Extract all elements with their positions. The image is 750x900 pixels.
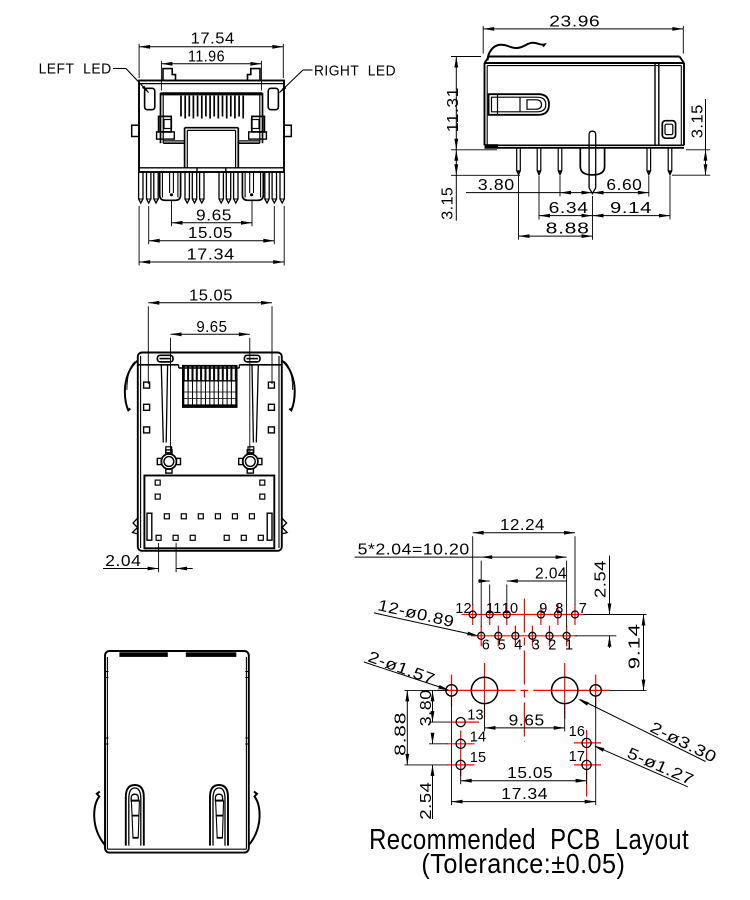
svg-text:11.31: 11.31 [445,87,462,132]
svg-text:9.14: 9.14 [610,200,652,217]
svg-text:5: 5 [498,638,506,654]
svg-text:3.15: 3.15 [440,187,457,220]
svg-text:3.80: 3.80 [478,177,515,194]
svg-text:6.34: 6.34 [549,200,589,217]
svg-text:8.88: 8.88 [546,221,590,238]
svg-text:2.04: 2.04 [105,553,141,570]
svg-text:10: 10 [502,601,519,617]
svg-text:(Tolerance:±0.05): (Tolerance:±0.05) [421,848,625,879]
svg-text:15.05: 15.05 [188,225,233,242]
svg-text:RIGHT LED: RIGHT LED [314,63,396,80]
svg-text:17.34: 17.34 [501,786,548,803]
svg-text:6: 6 [482,638,490,654]
svg-text:8.88: 8.88 [392,712,409,756]
svg-text:3.15: 3.15 [690,104,707,138]
svg-text:11.96: 11.96 [188,48,225,65]
svg-text:4: 4 [514,638,522,654]
svg-text:14: 14 [470,730,487,746]
svg-text:6.60: 6.60 [606,177,642,194]
svg-text:17.54: 17.54 [191,30,235,47]
svg-text:16: 16 [569,724,586,740]
svg-text:9.65: 9.65 [196,207,232,224]
svg-text:9.65: 9.65 [196,319,227,336]
svg-text:17.34: 17.34 [187,247,235,264]
svg-text:11: 11 [486,601,501,617]
svg-text:15.05: 15.05 [189,287,233,304]
svg-text:LEFT LED: LEFT LED [39,60,112,77]
svg-text:17: 17 [569,749,586,765]
svg-text:5*2.04=10.20: 5*2.04=10.20 [358,542,470,559]
svg-text:2.54: 2.54 [593,560,610,598]
svg-text:12.24: 12.24 [500,517,545,534]
svg-text:9.14: 9.14 [627,623,644,669]
svg-text:23.96: 23.96 [549,13,600,30]
svg-text:15.05: 15.05 [507,765,553,782]
svg-text:3: 3 [532,638,540,654]
svg-text:8: 8 [555,601,563,617]
svg-text:13: 13 [467,708,484,724]
svg-text:3.80: 3.80 [418,689,435,726]
svg-text:2: 2 [548,638,556,654]
svg-text:2.54: 2.54 [418,782,435,820]
svg-text:15: 15 [470,750,487,766]
svg-text:9: 9 [539,601,547,617]
svg-text:12: 12 [455,601,472,617]
svg-text:9.65: 9.65 [509,712,545,729]
svg-text:1: 1 [565,638,573,654]
svg-text:2.04: 2.04 [535,565,567,582]
